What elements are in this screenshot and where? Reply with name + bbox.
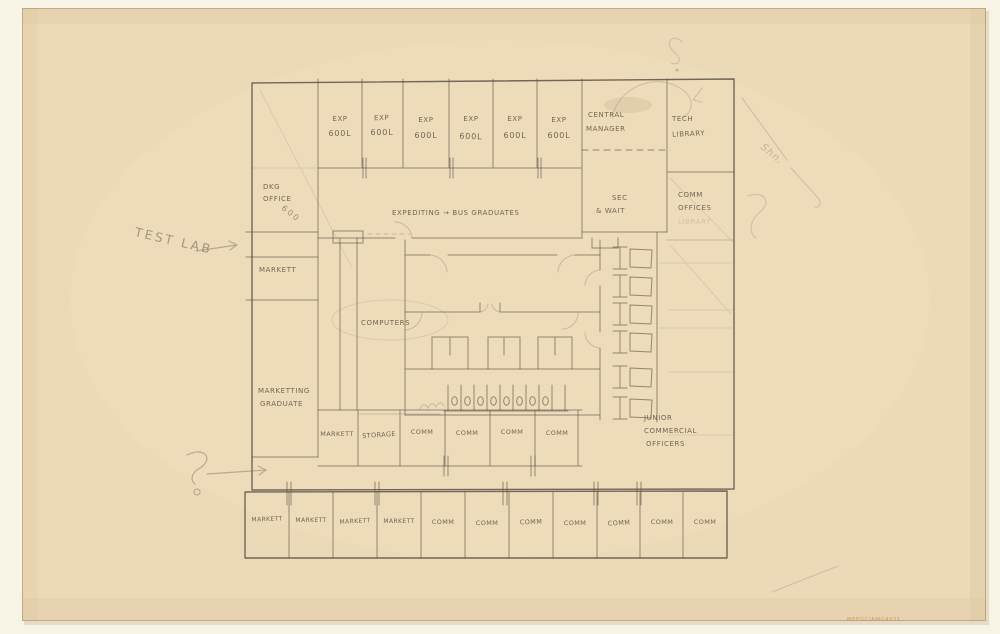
room-label-junior-1: JUNIOR [643,414,672,422]
paper-shade-left [22,8,38,621]
catalog-stamp: MEEGC/AMG4931 [847,617,901,623]
room-label-exp-3: EXP [418,116,433,124]
strip-label-8: COMM [564,519,586,527]
room-label-junior-3: OFFICERS [646,440,685,448]
room-area-exp-1: 600L [329,129,352,138]
room-label-lower-markett: MARKETT [320,430,354,438]
room-label-exp-1: EXP [332,115,347,123]
room-label-sec-wait-2: & WAIT [596,207,625,215]
room-label-dkg-office-1: DKG [263,183,280,191]
room-label-markett-left: MARKETT [259,266,296,274]
room-label-exp-5: EXP [507,115,522,123]
room-area-exp-3: 600L [415,131,438,140]
room-area-exp-4: 600L [459,132,482,142]
erased-label-library: LIBRARY [678,218,711,226]
room-label-comm-offices-1: COMM [678,191,703,199]
floor-plan-sketch-photo: EXP 600L EXP 600L EXP 600L EXP 600L EXP … [0,0,1000,634]
paper-sheet [22,8,989,625]
strip-label-10: COMM [651,518,673,526]
paper-shade-bottom [22,598,986,621]
hall-label: EXPEDITING → BUS GRADUATES [392,209,520,217]
room-label-junior-2: COMMERCIAL [644,427,697,435]
room-area-exp-2: 600L [371,128,394,137]
room-label-computers: COMPUTERS [361,319,410,327]
room-label-lower-comm-4: COMM [546,429,568,437]
room-label-lower-comm-2: COMM [456,429,478,437]
room-label-tech-library-1: TECH [671,115,693,123]
room-label-comm-offices-2: OFFICES [678,204,712,212]
strip-label-2: MARKETT [295,517,326,524]
room-label-sec-wait-1: SEC [612,194,628,202]
scribble-dot [676,69,679,72]
strip-label-7: COMM [520,518,543,527]
strip-label-4: MARKETT [383,518,414,525]
room-label-lower-comm-1: COMM [411,428,433,436]
room-label-lower-comm-3: COMM [501,428,523,436]
room-area-exp-6: 600L [548,131,571,140]
room-label-marketing-graduate-2: GRADUATE [260,400,303,408]
paper-shade-top [22,8,986,24]
strip-label-5: COMM [432,518,454,526]
strip-label-6: COMM [476,519,498,527]
strip-label-11: COMM [694,518,716,526]
room-label-marketing-graduate-1: MARKETTING [258,387,310,395]
room-label-central-manager-1: CENTRAL [588,111,624,119]
paper-highlight [70,40,930,560]
sketch-canvas: EXP 600L EXP 600L EXP 600L EXP 600L EXP … [0,0,1000,634]
room-label-exp-6: EXP [551,116,566,124]
room-area-exp-5: 600L [504,131,527,140]
room-label-dkg-office-2: OFFICE [263,195,292,203]
strip-label-1: MARKETT [251,515,282,523]
strip-label-9: COMM [608,518,631,527]
room-label-exp-4: EXP [463,115,478,123]
room-label-central-manager-2: MANAGER [586,125,626,133]
room-label-exp-2: EXP [374,114,390,123]
paper-shade-right [970,8,986,621]
